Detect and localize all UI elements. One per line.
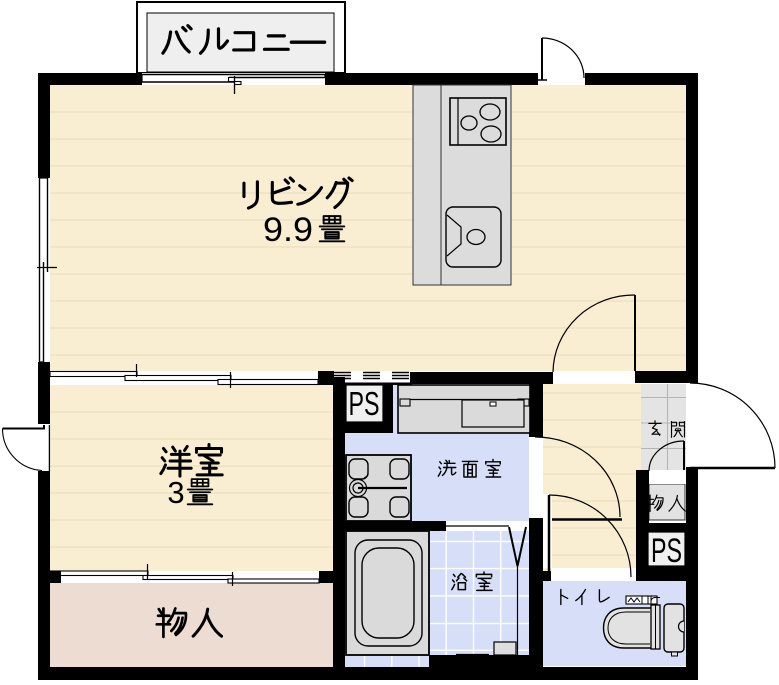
svg-text:3: 3 <box>167 475 184 510</box>
svg-text:PS: PS <box>651 532 682 570</box>
svg-text:PS: PS <box>349 385 380 422</box>
svg-text:9.9: 9.9 <box>263 211 313 249</box>
